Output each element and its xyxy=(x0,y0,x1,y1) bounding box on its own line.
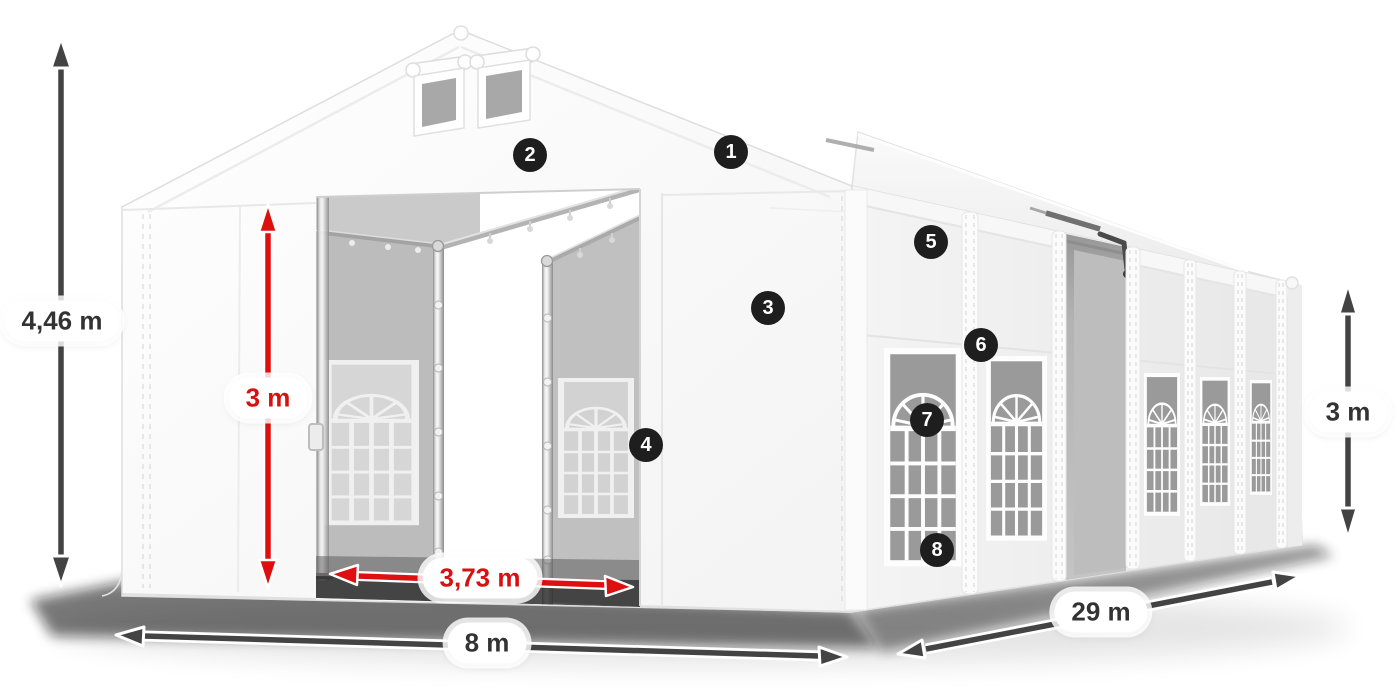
window xyxy=(1200,377,1230,506)
door-handle xyxy=(309,424,323,450)
window xyxy=(986,356,1047,541)
dim-label-entrance-height: 3 m xyxy=(229,378,308,419)
interior-mesh-window xyxy=(324,360,419,525)
side-door-opening xyxy=(1066,234,1131,580)
dim-label-entrance-width: 3,73 m xyxy=(423,558,538,599)
callout-badge-2: 2 xyxy=(513,138,547,172)
callout-badge-1: 1 xyxy=(714,135,748,169)
window xyxy=(1144,373,1180,516)
callout-badge-5: 5 xyxy=(914,225,948,259)
entrance-opening xyxy=(314,185,643,611)
callout-badge-7: 7 xyxy=(910,403,944,437)
callout-badge-3: 3 xyxy=(751,291,785,325)
peak-cap xyxy=(454,26,468,40)
window xyxy=(884,348,962,566)
callout-badge-4: 4 xyxy=(629,428,663,462)
callout-badge-6: 6 xyxy=(964,328,998,362)
side-wall xyxy=(826,132,1302,612)
dim-label-width: 8 m xyxy=(448,623,527,664)
tent-diagram-stage: 4,46 m 3 m 3,73 m 8 m 29 m 3 m 1 2 3 4 5… xyxy=(0,0,1400,700)
interior-mesh-window xyxy=(558,378,634,518)
callout-badge-8: 8 xyxy=(920,533,954,567)
dim-label-length: 29 m xyxy=(1054,592,1147,633)
corner-strap xyxy=(845,190,867,610)
dim-label-side-height: 3 m xyxy=(1309,392,1388,433)
window xyxy=(1250,380,1272,495)
tent-illustration xyxy=(0,0,1400,700)
far-corner-cap xyxy=(1286,277,1298,289)
dim-label-total-height: 4,46 m xyxy=(5,301,120,342)
front-gable xyxy=(102,26,867,612)
